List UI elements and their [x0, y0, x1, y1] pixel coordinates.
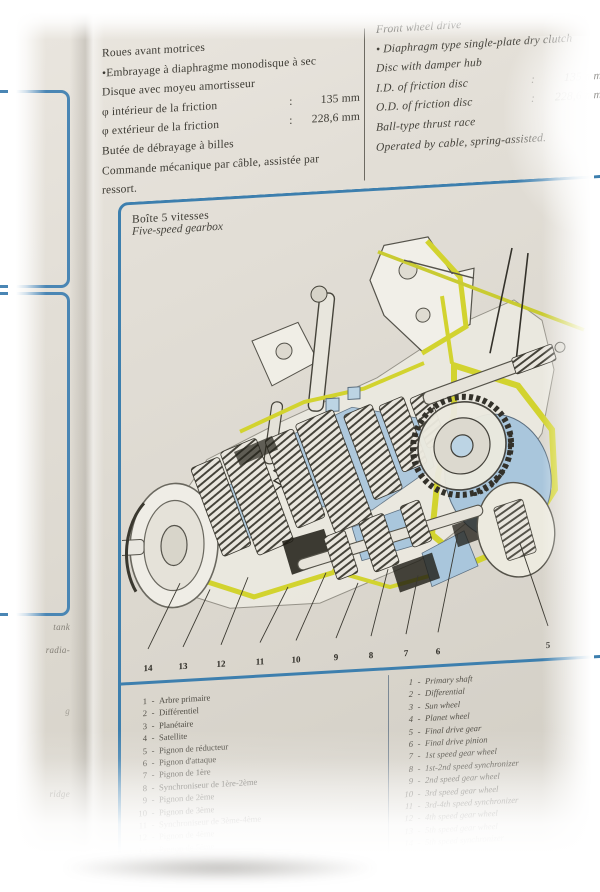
legend-item-dash: -	[147, 732, 159, 745]
legend-item-dash: -	[147, 818, 159, 831]
legend-item-number: 9	[400, 775, 413, 788]
legend-item-dash: -	[147, 781, 159, 794]
legend-item-dash: -	[413, 774, 425, 787]
spec-value: 135 mm	[540, 68, 600, 89]
legend-item-dash: -	[413, 799, 425, 812]
callout-number: 11	[251, 656, 269, 667]
legend-item-dash: -	[413, 749, 425, 762]
specs-french-column: Roues avant motrices•Embrayage à diaphra…	[102, 31, 360, 203]
legend-item-number: 6	[400, 738, 413, 751]
legend-item-dash: -	[413, 687, 425, 700]
spec-value: 228,6 mm	[298, 109, 360, 130]
prev-page-text-fragment: ridge	[12, 789, 70, 799]
legend-item-number: 6	[134, 757, 147, 770]
legend-item-label: Planétaire	[159, 717, 193, 731]
spec-colon: :	[526, 91, 540, 109]
legend-item-number: 10	[134, 807, 147, 820]
legend-item-dash: -	[147, 694, 159, 707]
legend-item-number: 7	[134, 769, 147, 782]
legend-item-dash: -	[413, 725, 425, 738]
legend-item-number: 13	[134, 844, 147, 857]
page-edge-shadow	[60, 856, 380, 880]
callout-number: 14	[139, 662, 157, 673]
callout-number: 12	[212, 658, 230, 669]
spec-colon: :	[284, 113, 298, 131]
legend-item-number: 1	[400, 676, 413, 689]
legend-item-number: 3	[134, 720, 147, 733]
prev-page-box-bottom	[0, 292, 70, 616]
legend-item-number: 8	[400, 763, 413, 776]
prev-page-text-fragment: g	[12, 706, 70, 716]
prev-page-box-top	[0, 90, 70, 288]
callout-number: 6	[429, 646, 447, 657]
legend-column-divider	[388, 675, 389, 865]
specs-english-column: Front wheel drive• Diaphragm type single…	[376, 9, 600, 159]
legend-item-dash: -	[413, 675, 425, 688]
legend-item-dash: -	[413, 737, 425, 750]
legend-item-number: 9	[134, 794, 147, 807]
legend-item-number: 5	[134, 745, 147, 758]
legend-item-number: 8	[134, 782, 147, 795]
callout-number: 13	[174, 660, 192, 671]
callout-number: 9	[327, 652, 345, 663]
legend-item-number: 12	[400, 812, 413, 825]
legend-english-column: 1-Primary shaft2-Differential3-Sun wheel…	[400, 665, 600, 850]
legend-item-number: 1	[134, 695, 147, 708]
prev-page-text-fragment: radia-	[12, 645, 70, 655]
legend-item-dash: -	[413, 787, 425, 800]
callout-number: 7	[397, 648, 415, 659]
legend-item-dash: -	[147, 707, 159, 720]
legend-item-dash: -	[147, 719, 159, 732]
spec-colon: :	[284, 93, 298, 111]
legend-item-dash: -	[413, 824, 425, 837]
callout-number: 5	[539, 639, 557, 650]
legend-item-dash: -	[147, 769, 159, 782]
spec-colon: :	[526, 71, 540, 89]
spec-value: 135 mm	[298, 90, 360, 111]
legend-item-number: 11	[400, 800, 413, 813]
callout-number: 8	[362, 650, 380, 661]
legend-item-number: 12	[134, 832, 147, 845]
legend-item-number: 10	[400, 787, 413, 800]
legend-item-dash: -	[147, 831, 159, 844]
gearbox-cutaway-diagram	[122, 225, 600, 657]
legend-item-number: 4	[400, 713, 413, 726]
legend-item-dash: -	[413, 762, 425, 775]
prev-page-text-fragment: tank	[12, 622, 70, 632]
legend-item-dash: -	[413, 836, 425, 849]
callout-number: 10	[287, 654, 305, 665]
legend-item-dash: -	[413, 712, 425, 725]
book-page-photo: { "specs_fr": { "lines": [ {"t": "Roues …	[0, 0, 600, 892]
legend-item-number: 13	[400, 825, 413, 838]
legend-item-number: 2	[400, 688, 413, 701]
legend-item-number: 2	[134, 707, 147, 720]
legend-item-number: 7	[400, 750, 413, 763]
legend-item-dash: -	[147, 843, 159, 856]
legend-item-dash: -	[147, 756, 159, 769]
legend-item-dash: -	[147, 806, 159, 819]
page-content: Roues avant motrices•Embrayage à diaphra…	[96, 2, 600, 878]
spec-column-divider	[364, 28, 365, 180]
photographed-page: tankradia-gridge Roues avant motrices•Em…	[8, 6, 594, 880]
legend-item-number: 14	[400, 837, 413, 850]
legend-item-dash: -	[147, 794, 159, 807]
legend-item-dash: -	[147, 744, 159, 757]
legend-item-dash: -	[413, 700, 425, 713]
spec-value: 228,6 mm	[540, 87, 600, 108]
legend-item-number: 11	[134, 819, 147, 832]
legend-french-column: 1-Arbre primaire2-Différentiel3-Planétai…	[134, 682, 370, 857]
legend-item-number: 5	[400, 725, 413, 738]
legend-item-number: 3	[400, 701, 413, 714]
legend-item-dash: -	[413, 811, 425, 824]
legend-item-number: 4	[134, 732, 147, 745]
